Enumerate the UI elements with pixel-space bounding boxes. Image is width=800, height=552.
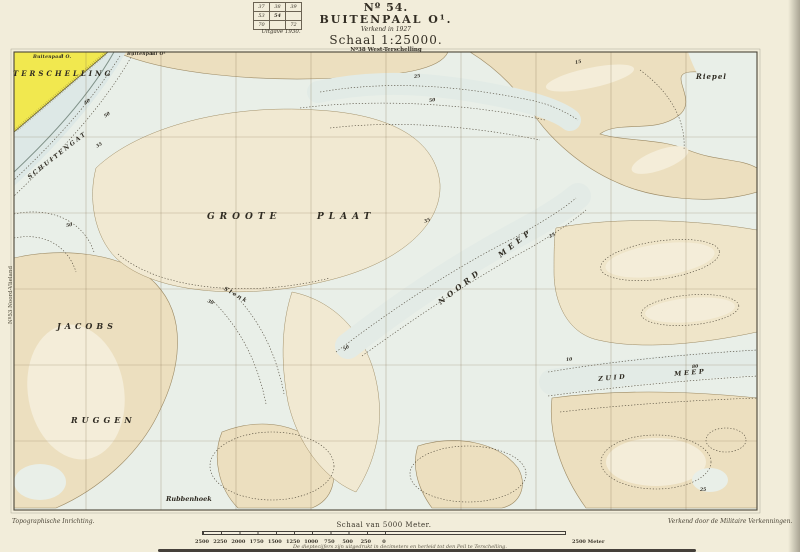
imprint-right: Verkend door de Militaire Verkenningen. [668, 518, 792, 525]
scalebar-tick-label: 750 [324, 539, 334, 545]
imprint-left: Topographische Inrichting. [12, 518, 94, 525]
label-ruggen: RUGGEN [71, 416, 136, 424]
map-artwork [0, 0, 800, 552]
map-sheet: Nº 54. BUITENPAAL O¹. Verkend in 1927 Sc… [0, 0, 800, 552]
series-note: Nº38 West-Terschelling [300, 47, 472, 53]
sandbanks-pale [554, 221, 757, 345]
scalebar-tick-label: 250 [361, 539, 371, 545]
sheet-index-grid: 37 38 39 53 54 70 72 [253, 2, 302, 30]
scalebar-tick-label: 500 [342, 539, 352, 545]
surveyed-note: Verkend in 1927 [300, 26, 472, 33]
index-cell: 39 [286, 3, 302, 12]
index-cell: 38 [270, 3, 286, 12]
depth-number: 80 [692, 365, 699, 370]
label-rubbenhoek: Rubbenhoek [166, 496, 212, 503]
label-buitenpaal-a: Buitenpaal O. [33, 56, 71, 61]
scalebar-tick-label: 1500 [268, 539, 282, 545]
scale-title: Schaal 1:25000. [280, 33, 492, 47]
index-cell-current: 54 [270, 12, 286, 21]
index-cell: 37 [254, 3, 270, 12]
scalebar-tick-label: 1000 [304, 539, 318, 545]
scan-edge-right [788, 0, 800, 552]
label-plaat: PLAAT [317, 213, 375, 222]
label-riepel: Riepel [696, 73, 727, 80]
scalebar-tick-label: 2000 [231, 539, 245, 545]
label-jacobs: JACOBS [57, 322, 117, 330]
depth-number: 25 [700, 489, 706, 494]
scalebar-tick-label: 1750 [250, 539, 264, 545]
scalebar-tick-label: 0 [382, 539, 385, 545]
scalebar [202, 531, 566, 535]
index-cell [286, 12, 302, 21]
index-cell: 53 [254, 12, 270, 21]
scalebar-tick-label: 1250 [286, 539, 300, 545]
depth-number: 10 [566, 358, 573, 363]
label-buitenpaal-b: Buitenpaal O¹ [127, 53, 166, 58]
edition-note: Uitgave 1930. [246, 29, 316, 35]
scalebar-title: Schaal van 5000 Meter. [284, 521, 484, 529]
adjacent-sheet-left: Nº53 Noord-Vlieland [8, 250, 14, 340]
scalebar-tick-label: 2250 [213, 539, 227, 545]
scalebar-tick-label: 2500 [195, 539, 209, 545]
scalebar-ticks [203, 532, 386, 534]
label-terschelling: TERSCHELLING [13, 70, 113, 77]
label-groote: GROOTE [207, 213, 281, 222]
depth-number: 25 [414, 75, 421, 80]
depth-number: 50 [429, 99, 436, 104]
scalebar-right-label: 2500 Meter [572, 539, 605, 545]
